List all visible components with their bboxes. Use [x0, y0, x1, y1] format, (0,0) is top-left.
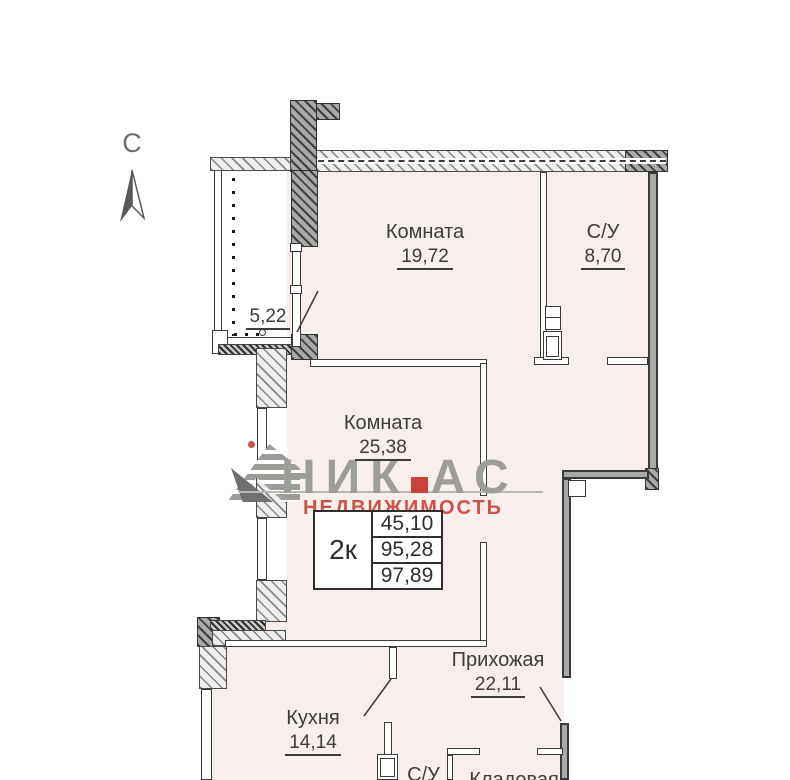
total-area-value: 97,89: [373, 564, 441, 588]
kitchen-area: 14,14: [285, 732, 341, 756]
balcony-door-frame: [292, 247, 301, 347]
north-label: С: [112, 128, 152, 159]
dimension-end-dot: [259, 329, 266, 336]
partition-kitchen-door-stub: [389, 647, 397, 679]
partition-bathroom-bottom-right: [607, 357, 648, 365]
room2-label: Комната 25,38: [308, 412, 458, 461]
bathroom-bottom-name: С/У: [396, 764, 451, 780]
wall-step-right: [562, 470, 649, 479]
storage-label: Кладовая: [464, 769, 564, 780]
room2-name: Комната: [308, 412, 458, 435]
partition-bathroom2-stub: [384, 722, 392, 755]
hallway-label: Прихожая 22,11: [438, 649, 558, 698]
room1-name: Комната: [350, 221, 500, 244]
room1-label: Комната 19,72: [350, 221, 500, 270]
boiler-fixture-bottom: [545, 317, 561, 330]
wall-right-upper: [648, 172, 658, 470]
bathroom-top-name: С/У: [558, 221, 648, 244]
logo-red-square-icon: [411, 477, 428, 493]
wall-left-1: [256, 348, 287, 408]
wall-top-axis-line: [298, 158, 666, 164]
balcony-label: 5,22: [238, 304, 298, 330]
hallway-name: Прихожая: [438, 649, 558, 672]
vent-shaft: [568, 480, 586, 497]
hallway-area: 22,11: [471, 674, 525, 698]
balcony-dimension-dotted-line: [234, 333, 262, 336]
floor-kitchen-edge: [212, 688, 232, 780]
logo-red-dot: [248, 441, 255, 448]
room1-area: 19,72: [397, 246, 453, 270]
partition-room2-bottom: [225, 640, 487, 647]
washer-fixture-inner: [380, 758, 395, 777]
balcony-area: 5,22: [246, 306, 291, 330]
apartment-area-value: 95,28: [373, 538, 441, 564]
living-area-value: 45,10: [373, 512, 441, 538]
apartment-type: 2к: [315, 512, 373, 588]
north-arrow-icon: [120, 170, 144, 222]
bathroom-bottom-label: С/У: [396, 764, 451, 780]
wall-stub-above-arm: [316, 103, 340, 120]
kitchen-label: Кухня 14,14: [253, 707, 373, 756]
storage-name: Кладовая: [464, 769, 564, 780]
bathroom-top-area: 8,70: [581, 246, 626, 270]
toilet-fixture-inner: [546, 336, 559, 357]
apartment-areas: 45,10 95,28 97,89: [373, 512, 441, 588]
wall-kitchen-left: [199, 646, 227, 689]
balcony-parapet-top: [210, 157, 291, 171]
wall-balcony-pier-top: [291, 170, 318, 247]
balcony-railing-dotted-line: [232, 178, 235, 336]
wall-right-middle: [562, 478, 571, 678]
partition-hall-stub: [537, 748, 563, 755]
wall-left-3: [256, 580, 287, 622]
apartment-info-table: 2к 45,10 95,28 97,89: [313, 510, 443, 590]
balcony-door-sill-top: [290, 243, 302, 252]
window-2: [257, 518, 267, 580]
balcony-parapet-left: [214, 165, 222, 343]
partition-room2-right-lower: [480, 542, 487, 646]
partition-storage-top: [447, 748, 480, 755]
balcony-door-sill-mid: [290, 285, 302, 294]
bathroom-top-label: С/У 8,70: [558, 221, 648, 270]
room2-area: 25,38: [355, 437, 411, 461]
partition-rooms: [310, 359, 487, 367]
kitchen-name: Кухня: [253, 707, 373, 730]
wall-stub-above: [290, 100, 317, 172]
window-kitchen: [201, 689, 212, 780]
floor-plan: С НИКАС НЕДВИЖИМОСТЬ Комната 19,72 С/У 8…: [0, 0, 790, 780]
